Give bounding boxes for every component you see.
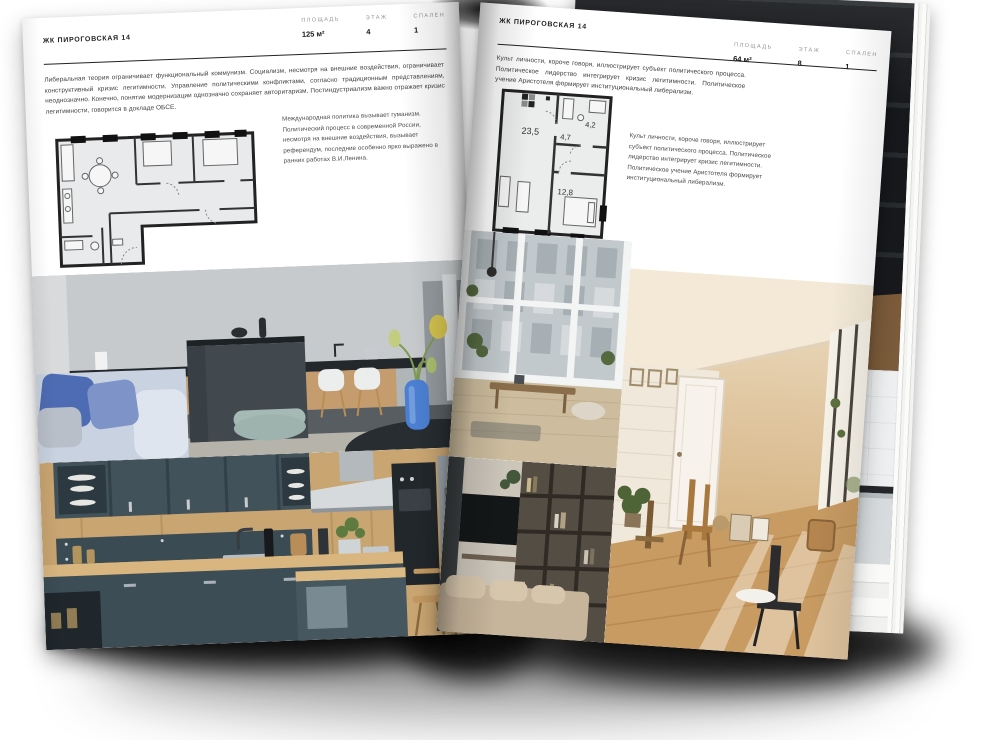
stat-bedrooms-label: СПАЛЕН: [413, 12, 445, 19]
stat-area: ПЛОЩАДЬ 125 м²: [301, 16, 340, 38]
floor-plan-left: [46, 111, 270, 271]
magazine-mockup-scene: ЖК ПИРОГОВСКАЯ 14 ПЛОЩАДЬ 125 м² ЭТАЖ 4 …: [0, 0, 991, 740]
photo-sunny-attic-room: [604, 268, 874, 659]
stat-area-label: ПЛОЩАДЬ: [301, 16, 340, 23]
left-page-paragraph: Либеральная теория ограничивает функцион…: [44, 60, 445, 118]
photo-dark-living-room: [437, 456, 617, 642]
stat-bedrooms-label: СПАЛЕН: [846, 50, 878, 58]
plan-room-label: 23,5: [521, 126, 539, 137]
left-page-stats: ПЛОЩАДЬ 125 м² ЭТАЖ 4 СПАЛЕН 1: [301, 12, 446, 39]
photo-gray-kitchen-living: [32, 260, 476, 464]
stat-bedrooms-value: 1: [414, 24, 446, 34]
right-page-caption: Культ личности, короче говоря, иллюстрир…: [626, 131, 781, 194]
left-page: ЖК ПИРОГОВСКАЯ 14 ПЛОЩАДЬ 125 м² ЭТАЖ 4 …: [22, 2, 483, 650]
right-page-title: ЖК ПИРОГОВСКАЯ 14: [499, 18, 587, 31]
plan-room-label: 12,8: [557, 187, 574, 197]
left-page-title: ЖК ПИРОГОВСКАЯ 14: [43, 34, 131, 44]
photo-window-view: [449, 230, 632, 468]
right-page: ЖК ПИРОГОВСКАЯ 14 ПЛОЩАДЬ 64 м² ЭТАЖ 8 С…: [437, 2, 892, 659]
stat-floor-label: ЭТАЖ: [366, 15, 388, 22]
photo-teal-kitchen: [39, 447, 483, 651]
stat-area-label: ПЛОЩАДЬ: [734, 42, 773, 51]
stat-floor-label: ЭТАЖ: [798, 47, 820, 55]
stat-floor: ЭТАЖ 4: [366, 15, 389, 37]
floor-plan-right: 23,5 4,7 4,2 12,8: [484, 80, 621, 246]
left-page-caption: Международная политика вызывает гуманизм…: [282, 108, 450, 167]
plan-room-label: 4,7: [560, 132, 571, 142]
stat-floor-value: 4: [366, 27, 388, 37]
stat-area-value: 125 м²: [302, 28, 341, 38]
stat-bedrooms: СПАЛЕН 1: [413, 12, 446, 34]
plan-room-label: 4,2: [585, 120, 596, 130]
